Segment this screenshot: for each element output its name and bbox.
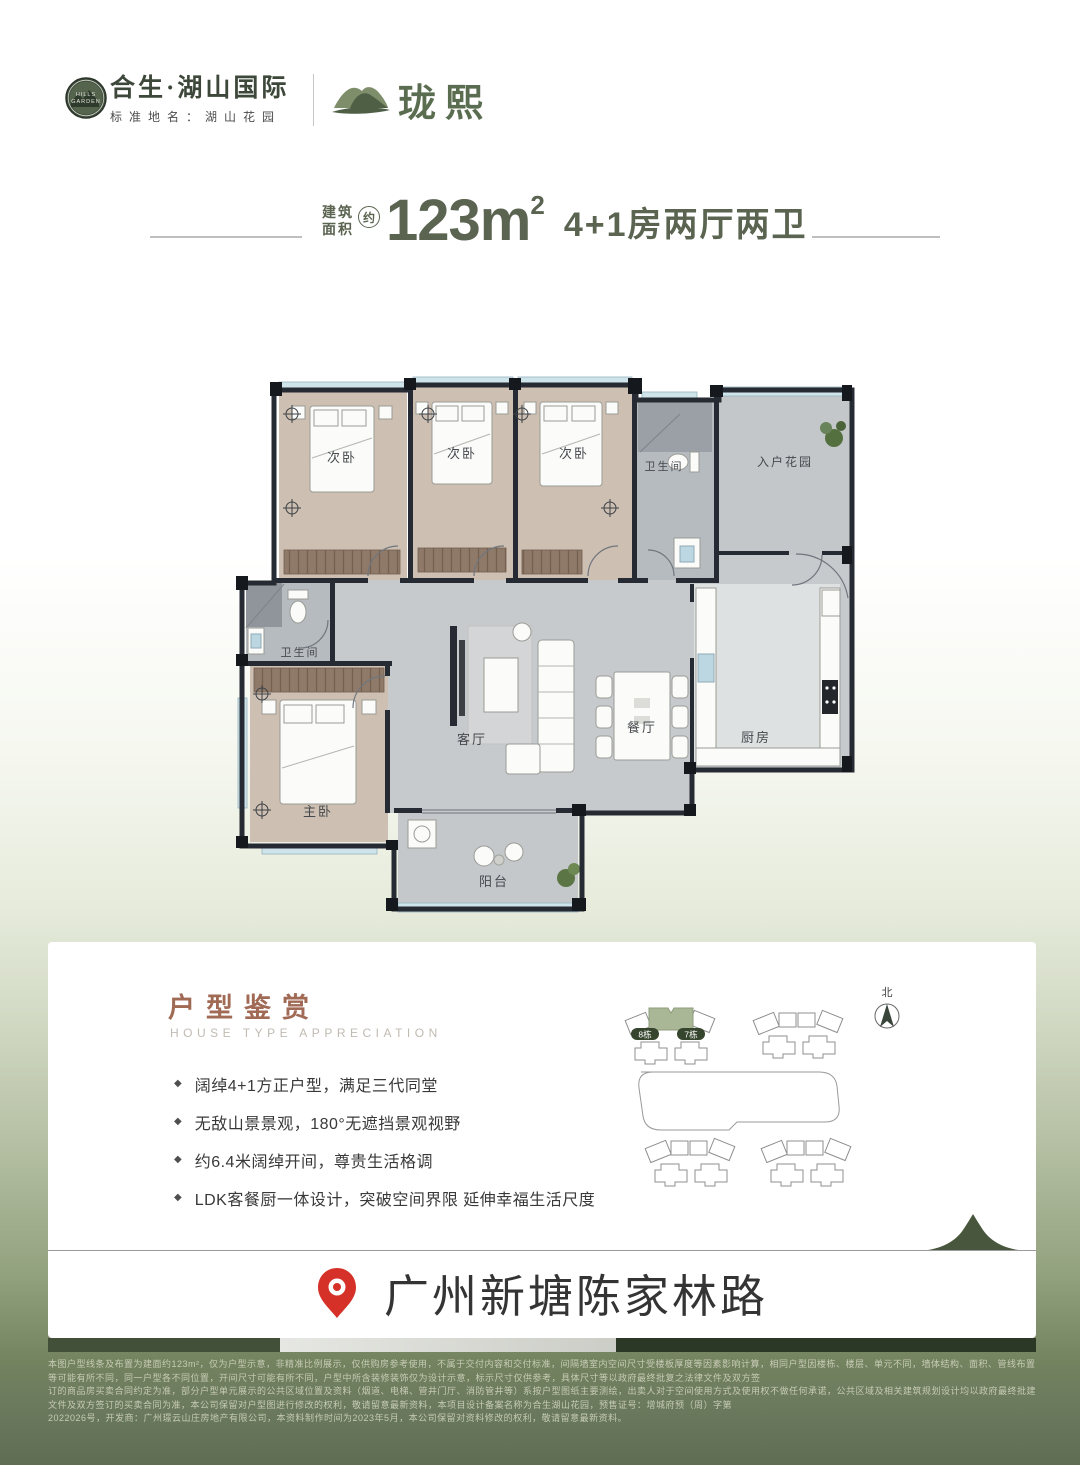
wardrobe-icon [254, 668, 384, 692]
building-cluster [753, 1010, 843, 1058]
bullet-item: ◆LDK客餐厨一体设计，突破空间界限 延伸幸福生活尺度 [174, 1186, 595, 1210]
building-cluster [645, 1138, 735, 1186]
emblem-text-bottom: GARDEN [71, 99, 101, 105]
highlighted-building [649, 1008, 693, 1030]
area-number: 123m [386, 188, 530, 253]
floor-plan: 次卧 次卧 次卧 卫生间 入户花园 卫生间 主卧 客厅 餐厅 厨房 阳台 [222, 358, 872, 918]
area-label-line2: 面积 [322, 221, 354, 238]
address-text: 广州新塘陈家林路 [384, 1260, 768, 1325]
mountain-logo-icon [330, 76, 392, 122]
toilet-icon [288, 590, 308, 623]
room-label-bedroom-c: 次卧 [559, 446, 589, 461]
section-subtitle: HOUSE TYPE APPRECIATION [170, 1026, 442, 1040]
bullet-text: 无敌山景景观，180°无遮挡景观视野 [195, 1110, 461, 1134]
room-label-bath-left: 卫生间 [281, 645, 320, 659]
area-value: 123m2 [386, 192, 544, 250]
subbrand-name: 珑熙 [398, 72, 492, 127]
section-title: 户型鉴赏 [168, 986, 320, 1025]
building-cluster [761, 1138, 851, 1186]
disclaimer-line: 2022026号，开发商：广州璟云山庄房地产有限公司，本资料制作时间为2023年… [48, 1412, 1038, 1426]
bullet-text: LDK客餐厨一体设计，突破空间界限 延伸幸福生活尺度 [195, 1186, 596, 1210]
tv-icon [459, 640, 465, 716]
bullet-text: 阔绰4+1方正户型，满足三代同堂 [195, 1072, 438, 1096]
footer-band-left [48, 1338, 280, 1352]
wardrobe-icon [522, 550, 582, 574]
sink-icon [698, 654, 714, 682]
room-label-living: 客厅 [457, 732, 487, 747]
room-label-bedroom-b: 次卧 [447, 446, 477, 461]
approx-badge: 约 [358, 206, 380, 228]
fridge-icon [822, 590, 840, 616]
appreciation-card: 户型鉴赏 HOUSE TYPE APPRECIATION ◆阔绰4+1方正户型，… [48, 942, 1036, 1338]
building-pill-label: 8栋 [638, 1030, 652, 1040]
bullet-text: 约6.4米阔绰开间，尊贵生活格调 [195, 1148, 433, 1172]
diamond-icon: ◆ [174, 1193, 182, 1203]
poster: HILLS GARDEN 合生·湖山国际 标准地名：湖山花园 珑熙 建筑 面积 … [0, 0, 1080, 1465]
brand-name: 合生·湖山国际 [110, 76, 289, 102]
card-divider [48, 1250, 1036, 1251]
site-plan: 8栋 7栋 北 [615, 982, 915, 1197]
room-label-bedroom-a: 次卧 [327, 450, 357, 465]
bullet-item: ◆阔绰4+1方正户型，满足三代同堂 [174, 1072, 595, 1096]
brand-block: 合生·湖山国际 标准地名：湖山花园 [110, 76, 289, 125]
disclaimer-line: 订的商品房买卖合同约定为准，部分户型单元展示的公共区域位置及资料（烟道、电梯、管… [48, 1385, 1038, 1412]
coffee-table-icon [484, 658, 518, 712]
wardrobe-icon [284, 550, 400, 574]
washbasin-icon [248, 628, 264, 654]
room-label-master: 主卧 [303, 804, 333, 819]
bullet-item: ◆无敌山景景观，180°无遮挡景观视野 [174, 1110, 595, 1134]
diamond-icon: ◆ [174, 1117, 182, 1127]
washer-icon [408, 820, 436, 848]
building-pill-label: 7栋 [684, 1030, 698, 1040]
diamond-icon: ◆ [174, 1155, 182, 1165]
footer-band [48, 1338, 1036, 1352]
disclaimer: 本图户型线条及布置为建面约123m²，仅为户型示意，非精准比例展示，仅供购房参考… [48, 1358, 1038, 1426]
room-label-kitchen: 厨房 [741, 730, 771, 745]
headline-left-rule [150, 236, 302, 238]
location-row: 广州新塘陈家林路 [48, 1260, 1036, 1325]
room-label-balcony: 阳台 [479, 874, 509, 889]
side-table-icon [513, 623, 531, 641]
cooktop-icon [822, 680, 838, 714]
header-divider [313, 74, 314, 126]
room-label-bath-top: 卫生间 [645, 459, 684, 473]
bullet-list: ◆阔绰4+1方正户型，满足三代同堂 ◆无敌山景景观，180°无遮挡景观视野 ◆约… [174, 1072, 595, 1224]
diamond-icon: ◆ [174, 1079, 182, 1089]
wardrobe-icon [418, 548, 506, 572]
north-indicator: 北 [875, 986, 899, 1028]
dining-table-icon [596, 672, 688, 760]
brand-emblem-icon: HILLS GARDEN [64, 76, 108, 120]
headline-right-rule [812, 236, 940, 238]
layout-text: 4+1房两厅两卫 [564, 197, 808, 250]
north-label: 北 [882, 986, 893, 999]
disclaimer-line: 本图户型线条及布置为建面约123m²，仅为户型示意，非精准比例展示，仅供购房参考… [48, 1358, 1038, 1385]
room-label-dining: 餐厅 [627, 720, 657, 735]
location-pin-icon [316, 1267, 358, 1319]
footer-band-middle [280, 1338, 616, 1352]
area-superscript: 2 [530, 190, 543, 220]
area-label-line1: 建筑 [322, 204, 354, 221]
bullet-item: ◆约6.4米阔绰开间，尊贵生活格调 [174, 1148, 595, 1172]
brand-subtitle: 标准地名：湖山花园 [110, 108, 289, 125]
room-label-entry-garden: 入户花园 [757, 454, 813, 469]
mountain-silhouette-icon [928, 1214, 1018, 1250]
area-label: 建筑 面积 [322, 204, 354, 238]
footer-band-right [616, 1338, 1036, 1352]
highlighted-cluster: 8栋 7栋 [625, 1008, 715, 1064]
emblem-text-top: HILLS [76, 92, 96, 98]
washbasin-icon [674, 538, 700, 568]
site-boundary [639, 1072, 839, 1130]
headline: 建筑 面积 约 123m2 4+1房两厅两卫 [322, 192, 808, 250]
